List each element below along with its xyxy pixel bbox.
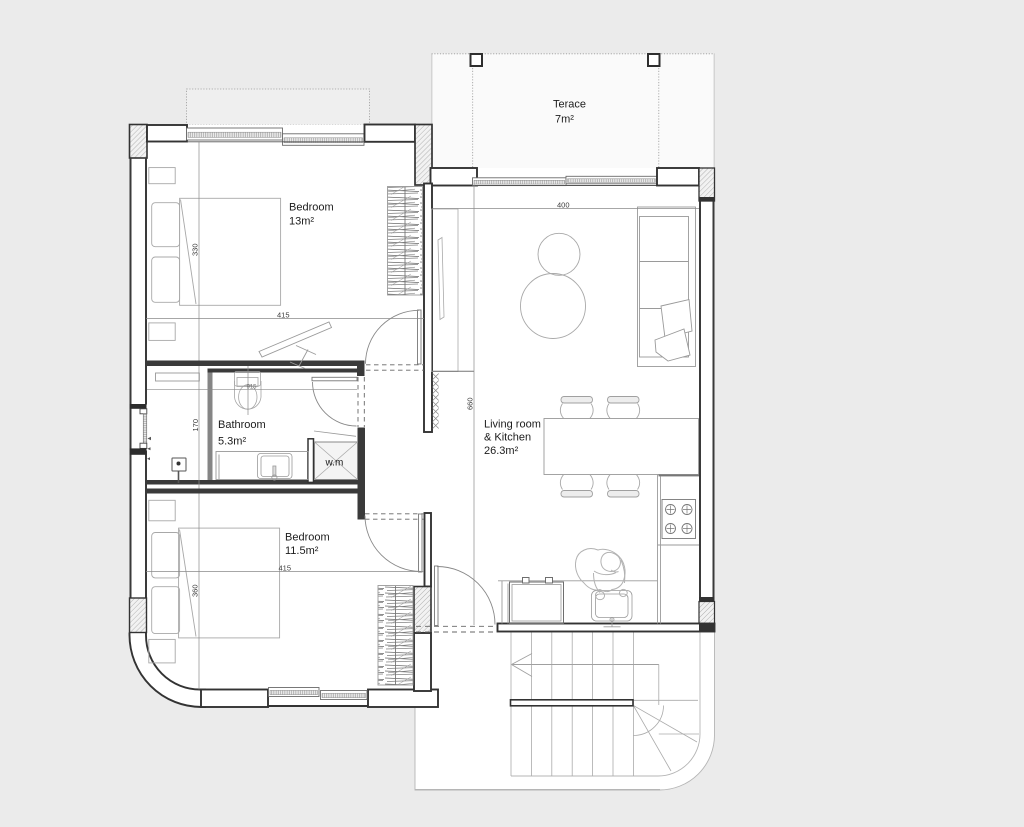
svg-text:360: 360 (191, 584, 200, 597)
svg-text:Bathroom: Bathroom (218, 419, 266, 431)
svg-text:Living room: Living room (484, 419, 541, 431)
svg-text:330: 330 (191, 243, 200, 256)
svg-text:400: 400 (557, 201, 570, 210)
svg-text:w.m: w.m (325, 458, 344, 469)
svg-text:13m²: 13m² (289, 216, 314, 228)
svg-text:415: 415 (279, 564, 292, 573)
svg-text:Bedroom: Bedroom (289, 202, 334, 214)
svg-text:Bedroom: Bedroom (285, 532, 330, 544)
svg-text:415: 415 (277, 311, 290, 320)
svg-text:7m²: 7m² (555, 114, 574, 126)
svg-text:5.3m²: 5.3m² (218, 436, 246, 448)
svg-text:11.5m²: 11.5m² (285, 545, 319, 557)
svg-text:660: 660 (466, 397, 475, 410)
svg-text:& Kitchen: & Kitchen (484, 432, 531, 444)
svg-text:170: 170 (191, 419, 200, 432)
svg-text:915: 915 (247, 385, 258, 391)
svg-text:26.3m²: 26.3m² (484, 445, 519, 457)
svg-text:Terace: Terace (553, 99, 586, 111)
